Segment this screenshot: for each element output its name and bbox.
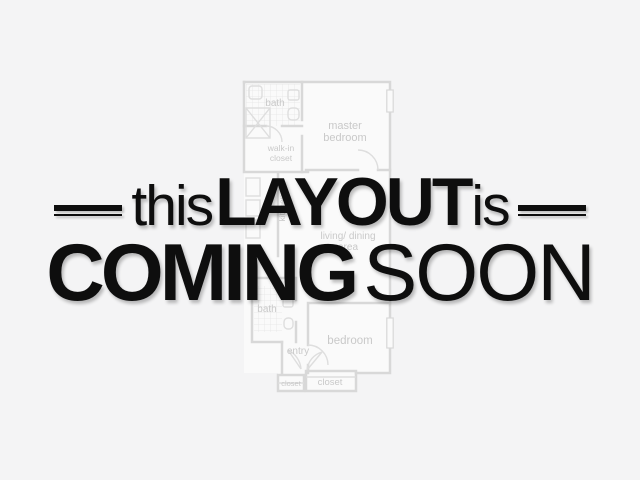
label-entry: entry <box>287 346 309 357</box>
label-bath-upper: bath <box>265 98 284 109</box>
label-bedroom: bedroom <box>327 335 372 347</box>
window-master <box>387 90 393 112</box>
word-coming: COMING <box>46 228 355 318</box>
headline-line1: thisLAYOUTis <box>0 168 640 230</box>
label-master-bedroom-line1: master <box>328 120 362 132</box>
coming-soon-placeholder: bath master bedroom walk-in closet kitch… <box>0 0 640 480</box>
right-rule <box>518 205 586 216</box>
word-soon: SOON <box>363 228 594 318</box>
headline-line2: COMINGSOON <box>0 233 640 314</box>
right-rule-thin-bar <box>518 214 586 216</box>
label-walk-in-line1: walk-in <box>267 143 295 153</box>
label-walk-in-line2: closet <box>270 153 293 163</box>
left-rule <box>54 205 122 216</box>
coming-soon-headline: thisLAYOUTis COMINGSOON <box>0 168 640 314</box>
window-bedroom <box>387 318 393 348</box>
label-master-bedroom-line2: bedroom <box>323 132 366 144</box>
left-rule-thin-bar <box>54 214 122 216</box>
label-closet-small: closet <box>281 379 302 388</box>
left-rule-thick-bar <box>54 205 122 211</box>
label-closet-large: closet <box>318 377 343 388</box>
right-rule-thick-bar <box>518 205 586 211</box>
